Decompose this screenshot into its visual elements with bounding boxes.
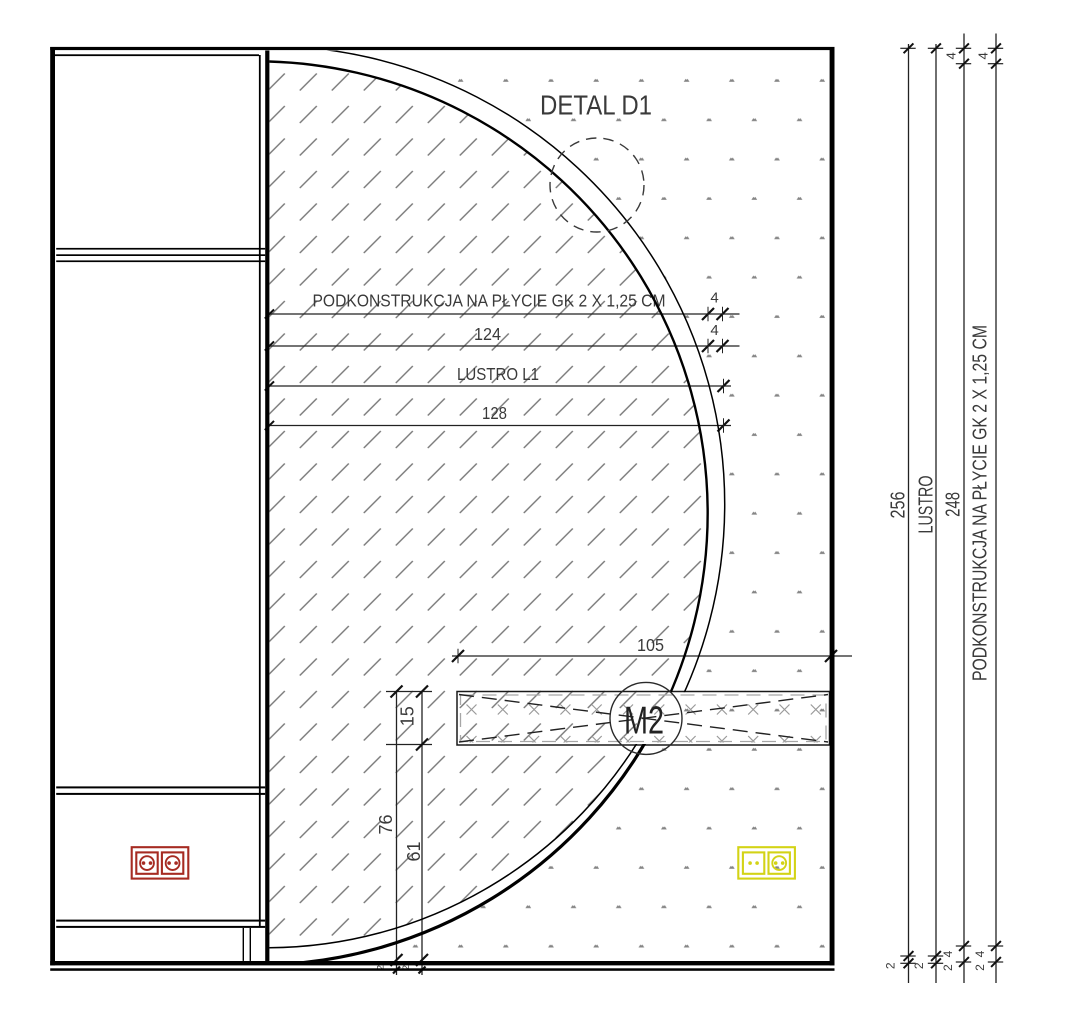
svg-text:256: 256 — [888, 492, 910, 519]
svg-text:4: 4 — [941, 950, 955, 957]
svg-text:248: 248 — [943, 492, 965, 517]
svg-text:M2: M2 — [624, 700, 664, 743]
svg-text:15: 15 — [398, 706, 418, 726]
svg-text:128: 128 — [482, 403, 507, 423]
svg-text:PODKONSTRUKCJA NA PŁYCIE GK 2: PODKONSTRUKCJA NA PŁYCIE GK 2 X 1,25 CM — [313, 291, 666, 311]
svg-text:4: 4 — [710, 322, 718, 339]
svg-text:2: 2 — [973, 964, 987, 971]
svg-text:DETAL D1: DETAL D1 — [540, 90, 652, 121]
svg-text:2: 2 — [912, 962, 926, 969]
svg-text:61: 61 — [404, 841, 424, 861]
svg-text:LUSTRO L1: LUSTRO L1 — [457, 364, 539, 384]
svg-text:4: 4 — [710, 290, 718, 307]
svg-text:LUSTRO: LUSTRO — [916, 476, 938, 534]
svg-text:4: 4 — [944, 52, 959, 59]
svg-text:105: 105 — [637, 635, 664, 655]
svg-text:4: 4 — [976, 52, 991, 59]
svg-text:124: 124 — [474, 324, 501, 344]
svg-text:PODKONSTRUKCJA NA PŁYCIE GK 2: PODKONSTRUKCJA NA PŁYCIE GK 2 X 1,25 CM — [970, 325, 992, 681]
svg-text:4: 4 — [973, 950, 987, 957]
svg-text:2: 2 — [941, 964, 955, 971]
svg-text:2: 2 — [884, 962, 898, 969]
svg-text:76: 76 — [376, 814, 396, 834]
